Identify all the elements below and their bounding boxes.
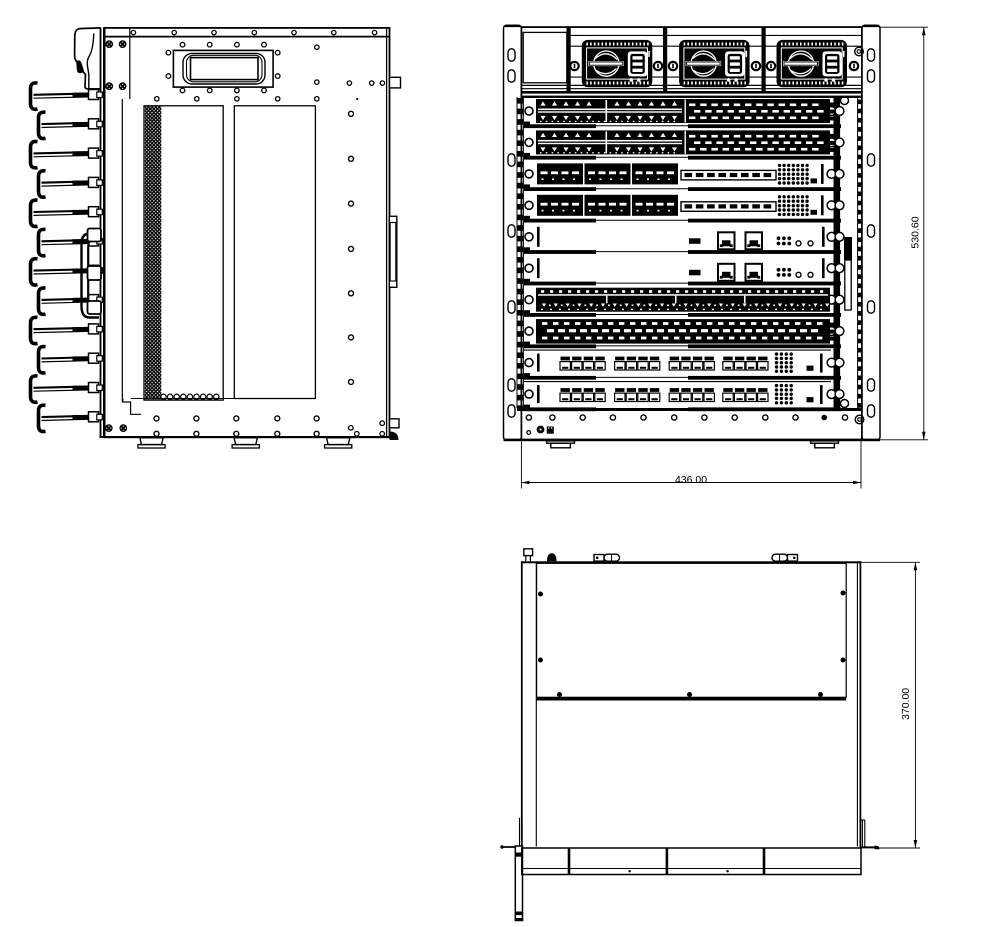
svg-text:370.00: 370.00 bbox=[900, 688, 912, 720]
svg-text:436.00: 436.00 bbox=[675, 474, 707, 486]
svg-text:530.60: 530.60 bbox=[910, 216, 922, 248]
